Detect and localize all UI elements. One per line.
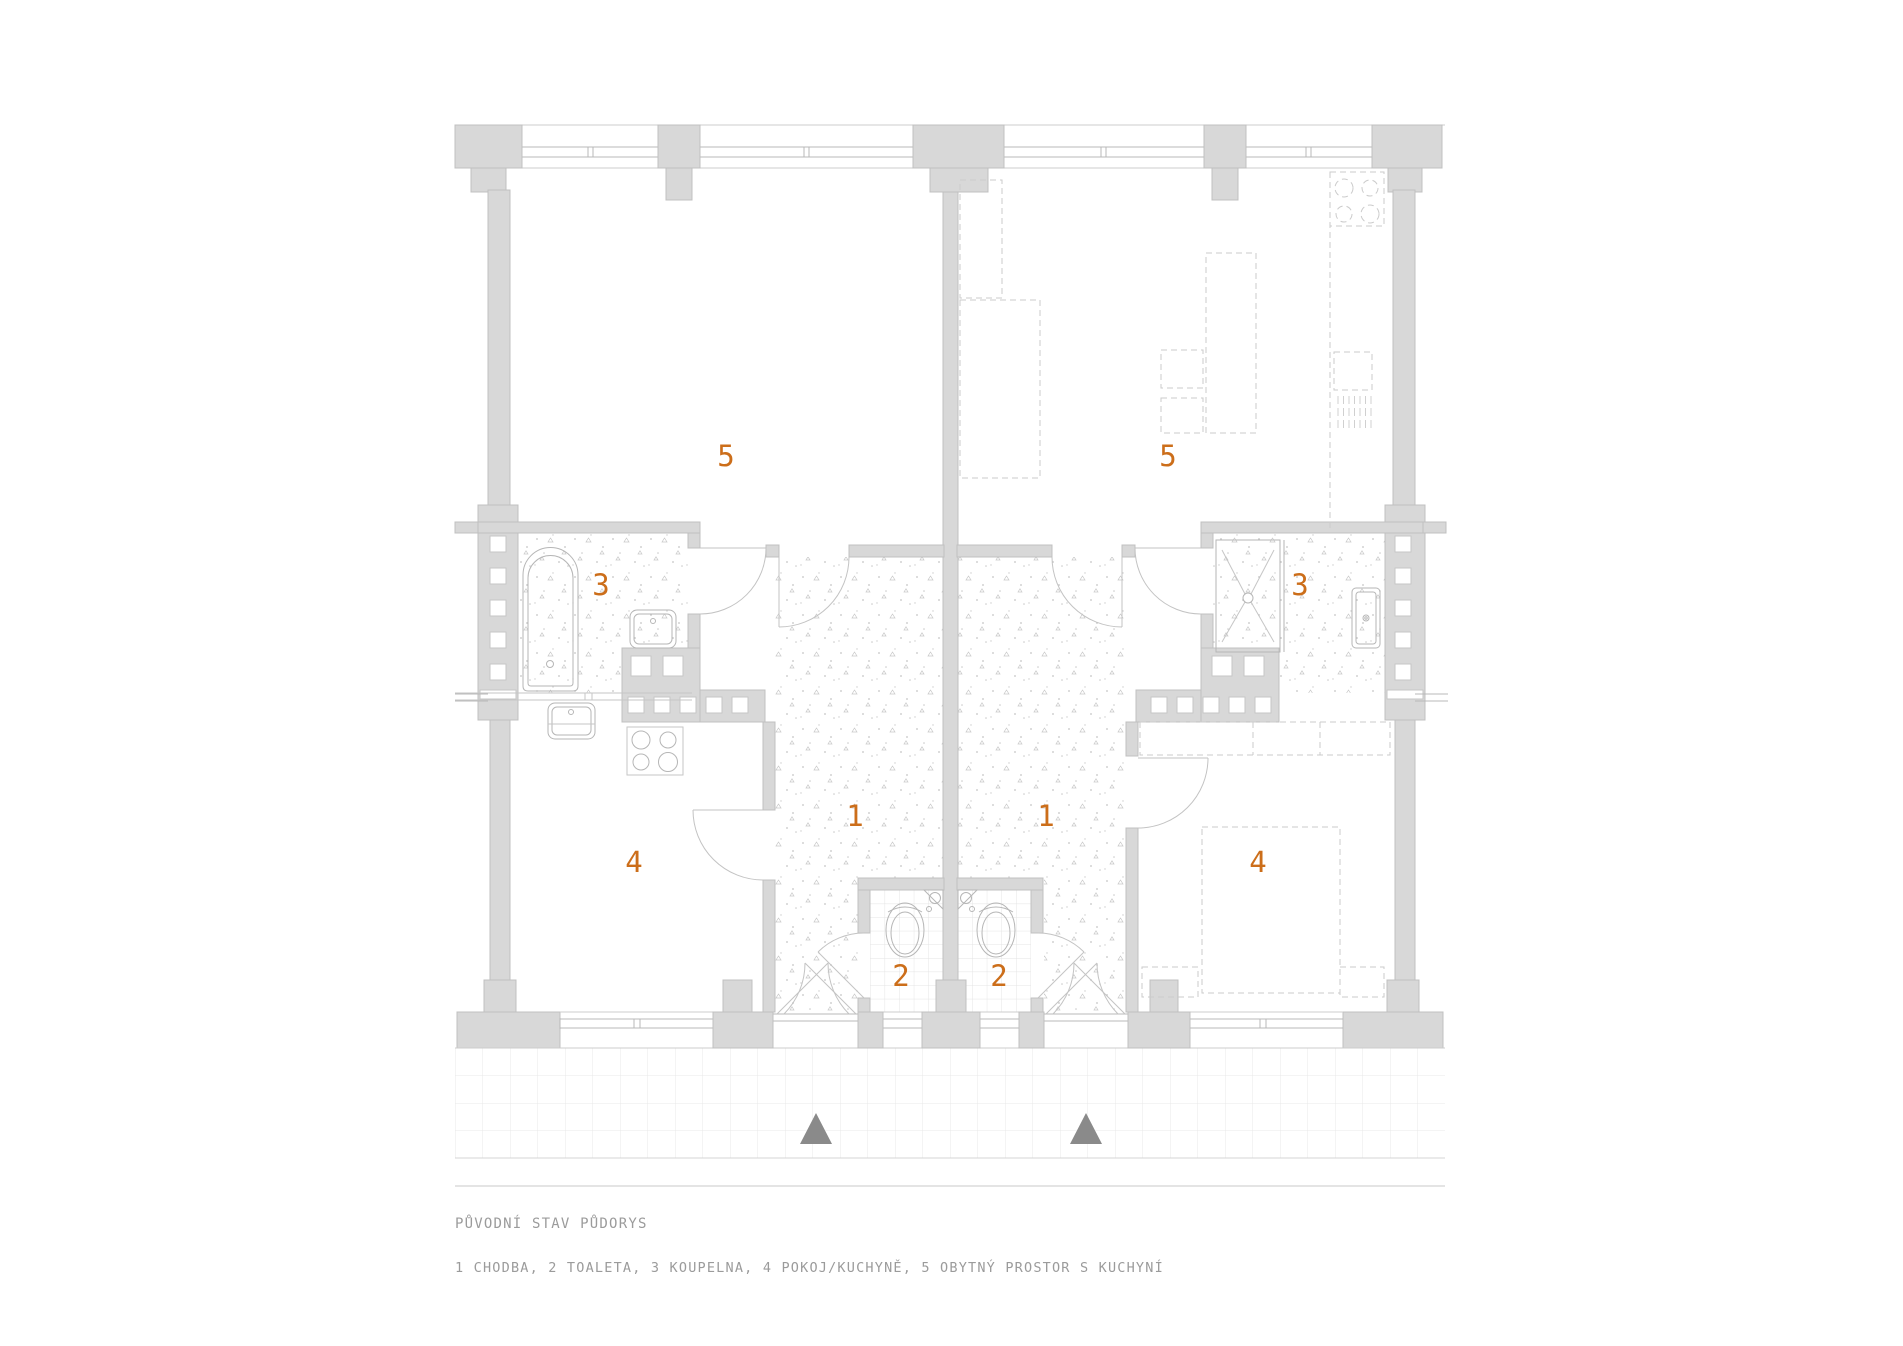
room-label-bathroom-right: 3 bbox=[1291, 568, 1308, 602]
wardrobe-row bbox=[1140, 722, 1390, 755]
room-label-bathroom-left: 3 bbox=[592, 568, 609, 602]
right-hall-entry-floor bbox=[1044, 878, 1126, 1012]
window bbox=[980, 1012, 1019, 1028]
bottom-exterior-wall bbox=[455, 980, 1445, 1048]
window bbox=[522, 146, 658, 168]
kitchen-island bbox=[1206, 253, 1256, 433]
window bbox=[1004, 146, 1204, 168]
room-label-wc-left: 2 bbox=[892, 959, 909, 993]
room-label-living-left: 5 bbox=[717, 439, 734, 473]
room-label-hall-left: 1 bbox=[846, 799, 863, 833]
plan-legend: 1 CHODBA, 2 TOALETA, 3 KOUPELNA, 4 POKOJ… bbox=[455, 1260, 1164, 1276]
cooktop bbox=[627, 727, 683, 775]
room-label-hall-right: 1 bbox=[1037, 799, 1054, 833]
kitchen-unit bbox=[1161, 398, 1203, 433]
radiator-hatch bbox=[1338, 396, 1371, 428]
party-wall bbox=[943, 192, 958, 1012]
room-label-wc-right: 2 bbox=[990, 959, 1007, 993]
room-label-living-right: 5 bbox=[1159, 439, 1176, 473]
left-room-door bbox=[693, 810, 763, 880]
left-wc-floor bbox=[870, 890, 943, 1012]
drawing-sheet: 5 5 3 3 1 1 4 4 2 2 PŮVODNÍ STAV PŮDORYS… bbox=[0, 0, 1903, 1346]
window bbox=[883, 1012, 922, 1028]
bed bbox=[1202, 827, 1340, 993]
west-wing-stub bbox=[455, 522, 478, 533]
side-table bbox=[1340, 967, 1384, 997]
floor-plan-drawing: 5 5 3 3 1 1 4 4 2 2 bbox=[0, 0, 1903, 1346]
wardrobe bbox=[960, 300, 1040, 478]
right-wc-floor bbox=[958, 890, 1031, 1012]
room-label-room-right: 4 bbox=[1249, 845, 1266, 879]
top-wall-piers bbox=[455, 125, 1442, 200]
left-installation-wall bbox=[622, 648, 765, 722]
window bbox=[1246, 146, 1372, 168]
kitchen-sink bbox=[548, 703, 595, 739]
cooktop bbox=[1330, 172, 1384, 226]
kitchen-unit bbox=[1161, 350, 1203, 388]
window bbox=[560, 1012, 713, 1029]
right-room-door bbox=[1138, 758, 1208, 828]
left-bathroom-door bbox=[700, 548, 766, 614]
top-exterior-wall bbox=[455, 125, 1445, 200]
window bbox=[700, 146, 913, 168]
east-wing-stub bbox=[1423, 522, 1446, 533]
room-label-room-left: 4 bbox=[625, 845, 642, 879]
window bbox=[1190, 1012, 1343, 1028]
left-hall-entry-floor bbox=[775, 878, 858, 1012]
outside-corridor-tiles bbox=[455, 1048, 1445, 1158]
right-installation-wall bbox=[1136, 648, 1279, 722]
right-bathroom-door bbox=[1135, 548, 1201, 614]
wardrobe bbox=[960, 180, 1002, 298]
kitchen-appliance bbox=[1334, 352, 1372, 390]
plan-title: PŮVODNÍ STAV PŮDORYS bbox=[455, 1216, 648, 1232]
